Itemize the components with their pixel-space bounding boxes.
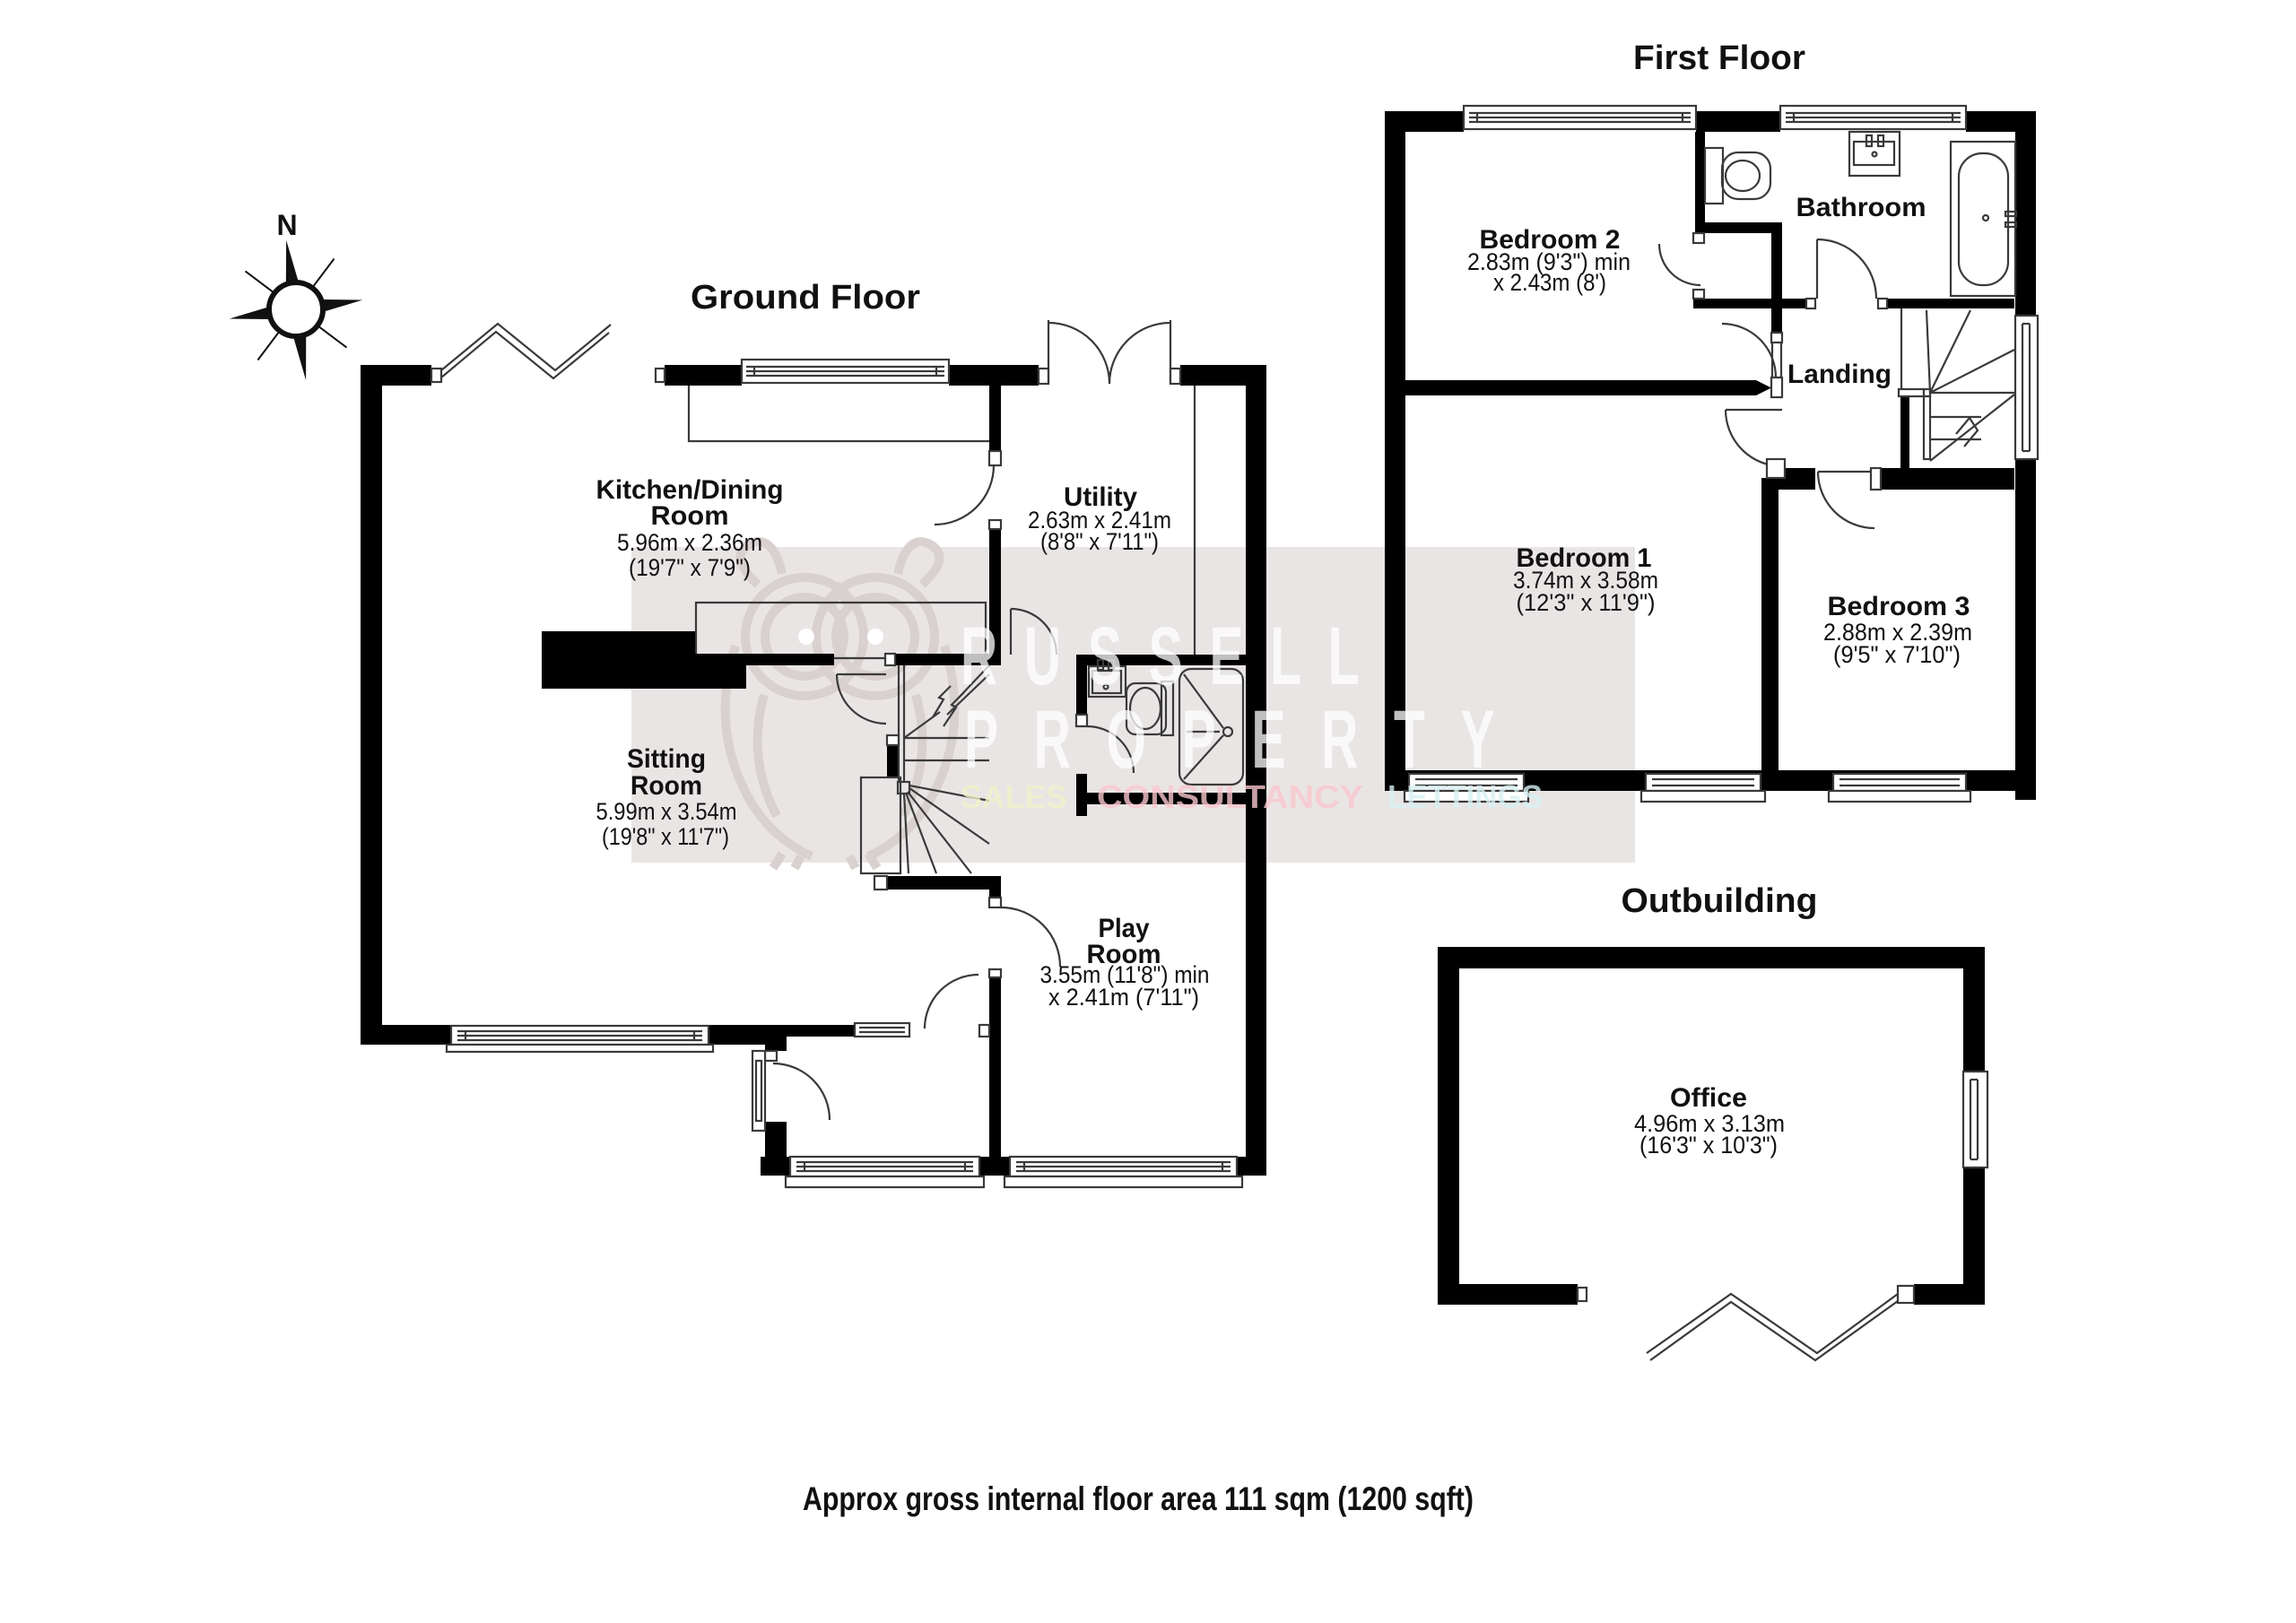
- svg-text:x 2.43m (8'): x 2.43m (8'): [1493, 269, 1606, 296]
- svg-text:Bathroom: Bathroom: [1796, 193, 1926, 222]
- svg-text:Room: Room: [651, 501, 729, 531]
- svg-text:First Floor: First Floor: [1633, 39, 1805, 77]
- svg-text:5.99m x 3.54m: 5.99m x 3.54m: [596, 798, 737, 825]
- svg-text:(9'5" x 7'10"): (9'5" x 7'10"): [1833, 641, 1961, 668]
- svg-text:Ground Floor: Ground Floor: [691, 279, 920, 317]
- svg-text:Office: Office: [1670, 1083, 1747, 1113]
- svg-text:RUSSELL: RUSSELL: [961, 611, 1386, 702]
- svg-text:PROPERTY: PROPERTY: [964, 694, 1530, 785]
- svg-text:(19'8" x 11'7"): (19'8" x 11'7"): [602, 823, 729, 850]
- svg-text:N: N: [276, 209, 297, 241]
- svg-text:Bedroom 3: Bedroom 3: [1828, 592, 1970, 621]
- svg-text:CONSULTANCY: CONSULTANCY: [1097, 778, 1363, 815]
- svg-text:Room: Room: [631, 771, 702, 801]
- svg-text:Landing: Landing: [1787, 360, 1892, 389]
- svg-text:x 2.41m (7'11"): x 2.41m (7'11"): [1048, 984, 1199, 1011]
- svg-text:Outbuilding: Outbuilding: [1622, 882, 1818, 920]
- svg-text:Approx gross internal floor ar: Approx gross internal floor area 111 sqm…: [803, 1480, 1474, 1517]
- svg-text:(19'7" x 7'9"): (19'7" x 7'9"): [629, 554, 751, 581]
- svg-text:5.96m x 2.36m: 5.96m x 2.36m: [617, 529, 762, 556]
- svg-text:(12'3" x 11'9"): (12'3" x 11'9"): [1517, 589, 1656, 616]
- svg-text:(8'8" x 7'11"): (8'8" x 7'11"): [1040, 528, 1159, 555]
- svg-text:Sitting: Sitting: [627, 744, 706, 774]
- svg-text:LETTINGS: LETTINGS: [1387, 778, 1543, 815]
- svg-text:(16'3" x 10'3"): (16'3" x 10'3"): [1639, 1132, 1778, 1159]
- svg-text:SALES: SALES: [961, 778, 1067, 815]
